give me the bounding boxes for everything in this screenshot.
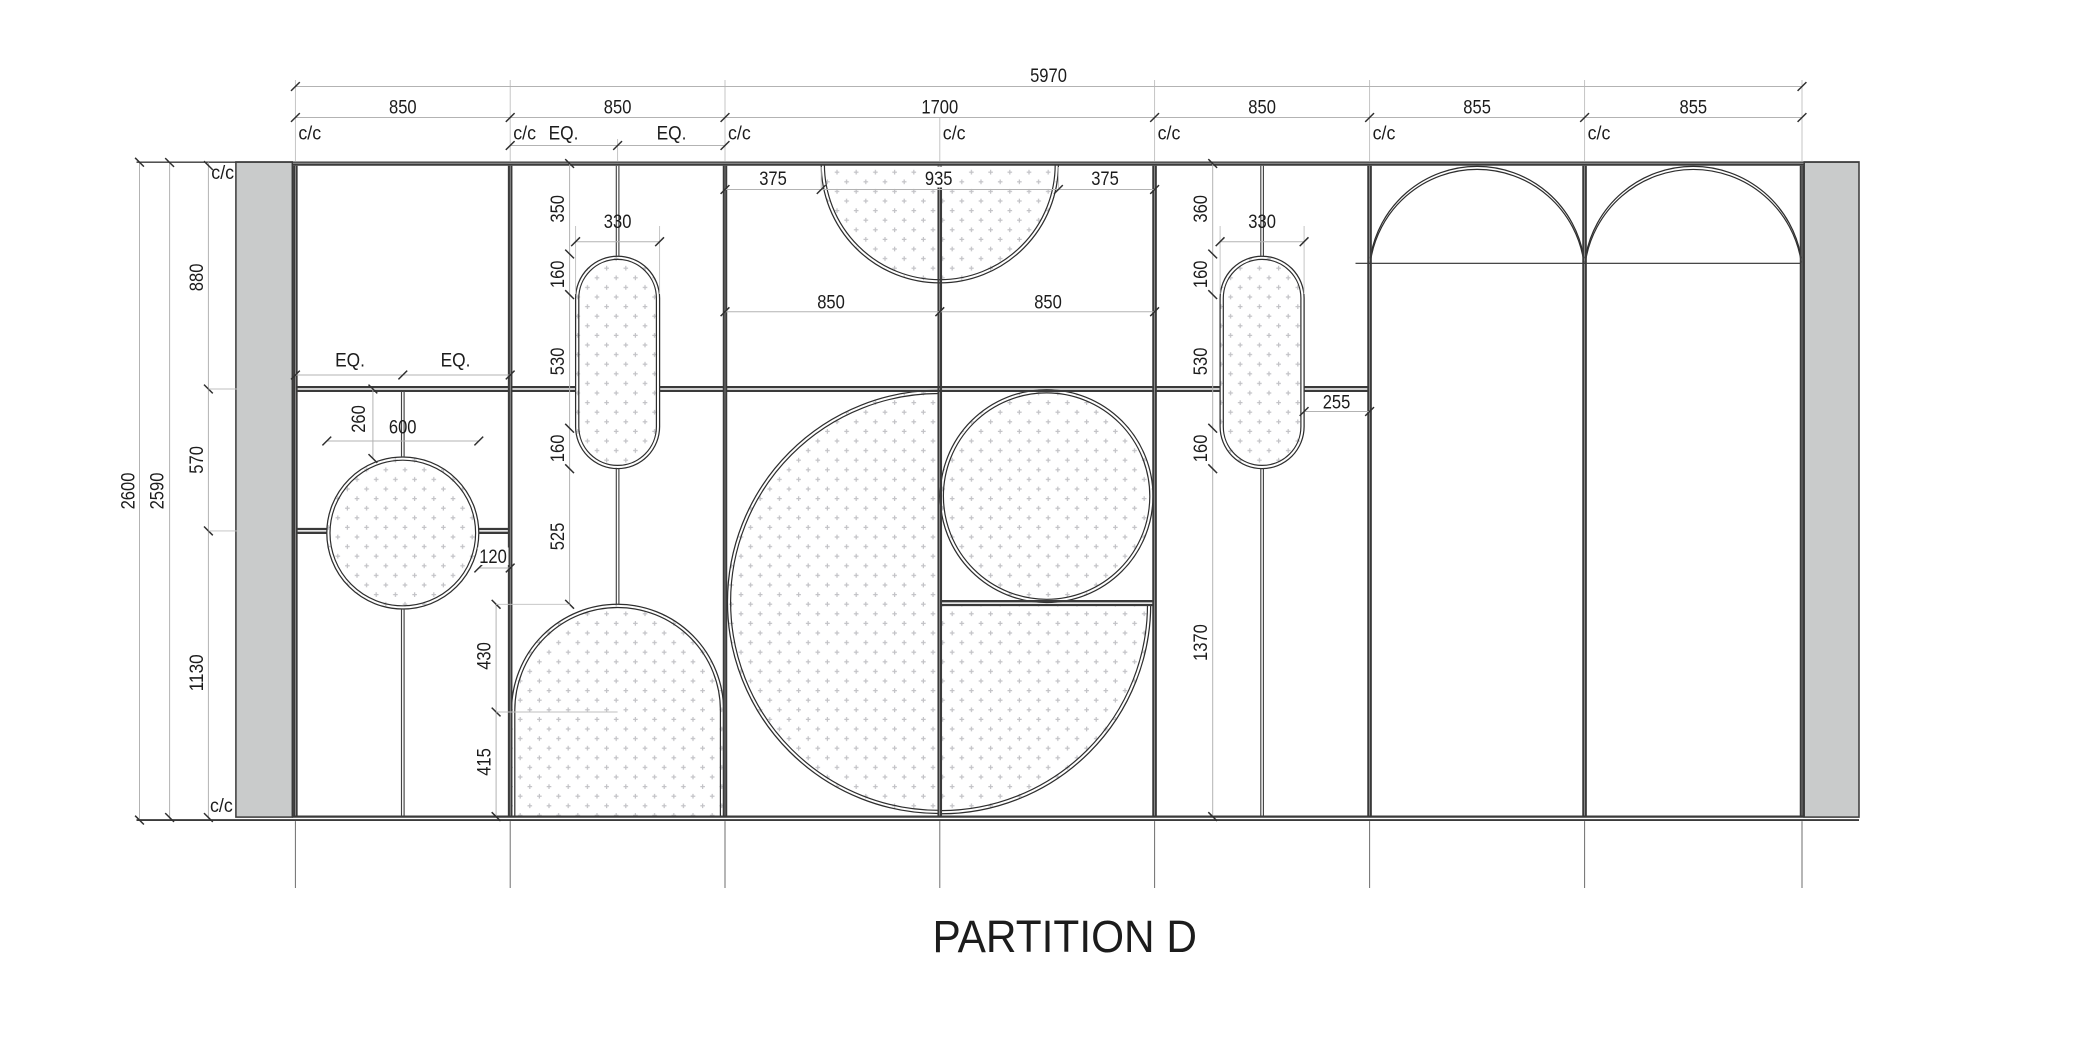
svg-text:855: 855 <box>1680 97 1708 119</box>
svg-text:850: 850 <box>1034 292 1062 314</box>
svg-text:1130: 1130 <box>186 654 208 691</box>
svg-text:c/c: c/c <box>728 123 751 145</box>
svg-text:c/c: c/c <box>211 162 234 184</box>
svg-text:c/c: c/c <box>298 123 321 145</box>
svg-text:160: 160 <box>1190 434 1212 462</box>
svg-text:c/c: c/c <box>210 795 233 817</box>
svg-text:c/c: c/c <box>1158 123 1181 145</box>
svg-text:880: 880 <box>186 263 208 291</box>
svg-text:375: 375 <box>759 168 787 190</box>
svg-text:1700: 1700 <box>921 97 958 119</box>
svg-text:2600: 2600 <box>118 472 140 509</box>
svg-text:c/c: c/c <box>1373 123 1396 145</box>
svg-text:PARTITION D: PARTITION D <box>933 911 1198 962</box>
svg-text:570: 570 <box>186 446 208 474</box>
svg-text:160: 160 <box>1190 260 1212 288</box>
svg-text:160: 160 <box>547 260 569 288</box>
svg-text:530: 530 <box>547 347 569 375</box>
svg-text:415: 415 <box>474 748 496 776</box>
svg-text:330: 330 <box>604 211 632 233</box>
svg-text:530: 530 <box>1190 347 1212 375</box>
svg-text:c/c: c/c <box>513 123 536 145</box>
svg-text:525: 525 <box>547 523 569 551</box>
svg-text:EQ.: EQ. <box>335 350 365 372</box>
svg-text:120: 120 <box>479 546 507 568</box>
svg-text:255: 255 <box>1323 392 1351 414</box>
svg-text:850: 850 <box>389 97 417 119</box>
svg-text:c/c: c/c <box>1588 123 1611 145</box>
svg-text:2590: 2590 <box>147 472 169 509</box>
svg-text:375: 375 <box>1091 168 1119 190</box>
svg-text:350: 350 <box>547 195 569 223</box>
svg-text:260: 260 <box>348 405 370 433</box>
svg-text:5970: 5970 <box>1030 65 1067 87</box>
svg-text:330: 330 <box>1248 211 1276 233</box>
svg-text:600: 600 <box>389 417 417 439</box>
svg-text:850: 850 <box>604 97 632 119</box>
svg-text:c/c: c/c <box>943 123 966 145</box>
svg-text:935: 935 <box>925 168 953 190</box>
svg-text:EQ.: EQ. <box>549 123 579 145</box>
svg-text:160: 160 <box>547 434 569 462</box>
svg-text:EQ.: EQ. <box>657 123 687 145</box>
svg-text:850: 850 <box>817 292 845 314</box>
svg-text:855: 855 <box>1463 97 1491 119</box>
svg-text:430: 430 <box>474 642 496 670</box>
svg-text:360: 360 <box>1190 195 1212 223</box>
svg-text:EQ.: EQ. <box>441 350 471 372</box>
svg-text:850: 850 <box>1248 97 1276 119</box>
svg-text:1370: 1370 <box>1190 624 1212 661</box>
